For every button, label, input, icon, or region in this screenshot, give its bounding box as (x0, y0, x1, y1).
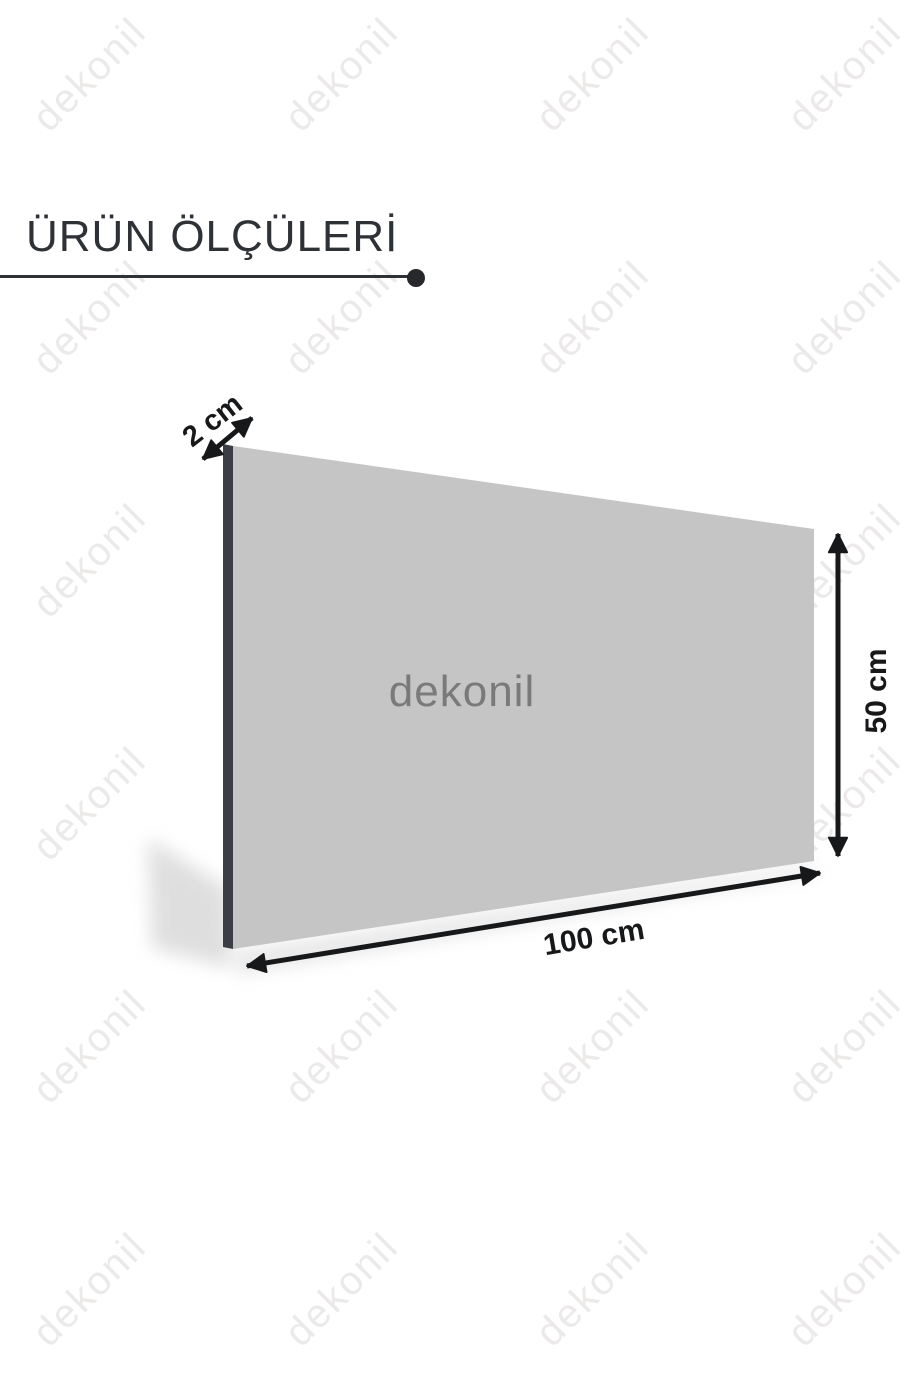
page-root: dekonildekonildekonildekonildekonildekon… (0, 0, 920, 1380)
page-title: ÜRÜN ÖLÇÜLERİ (26, 212, 398, 262)
panel-edge (223, 444, 233, 949)
title-underline (0, 275, 413, 278)
height-label: 50 cm (860, 648, 894, 733)
title-underline-dot (407, 269, 425, 287)
panel-brand-label: dekonil (389, 667, 535, 717)
